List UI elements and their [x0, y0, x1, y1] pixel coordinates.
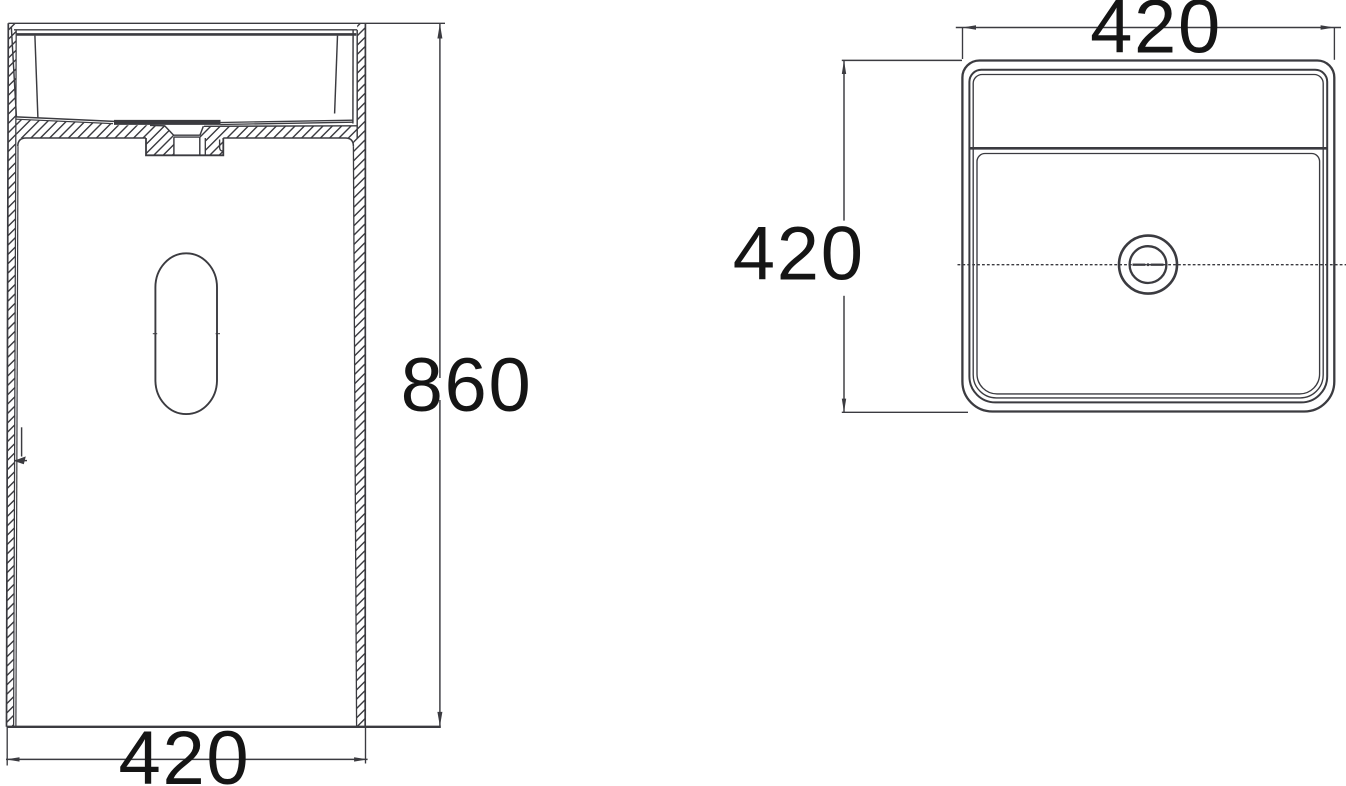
svg-text:420: 420	[733, 212, 865, 297]
svg-text:420: 420	[119, 716, 251, 786]
svg-text:420: 420	[1090, 0, 1222, 70]
svg-text:860: 860	[401, 343, 533, 428]
